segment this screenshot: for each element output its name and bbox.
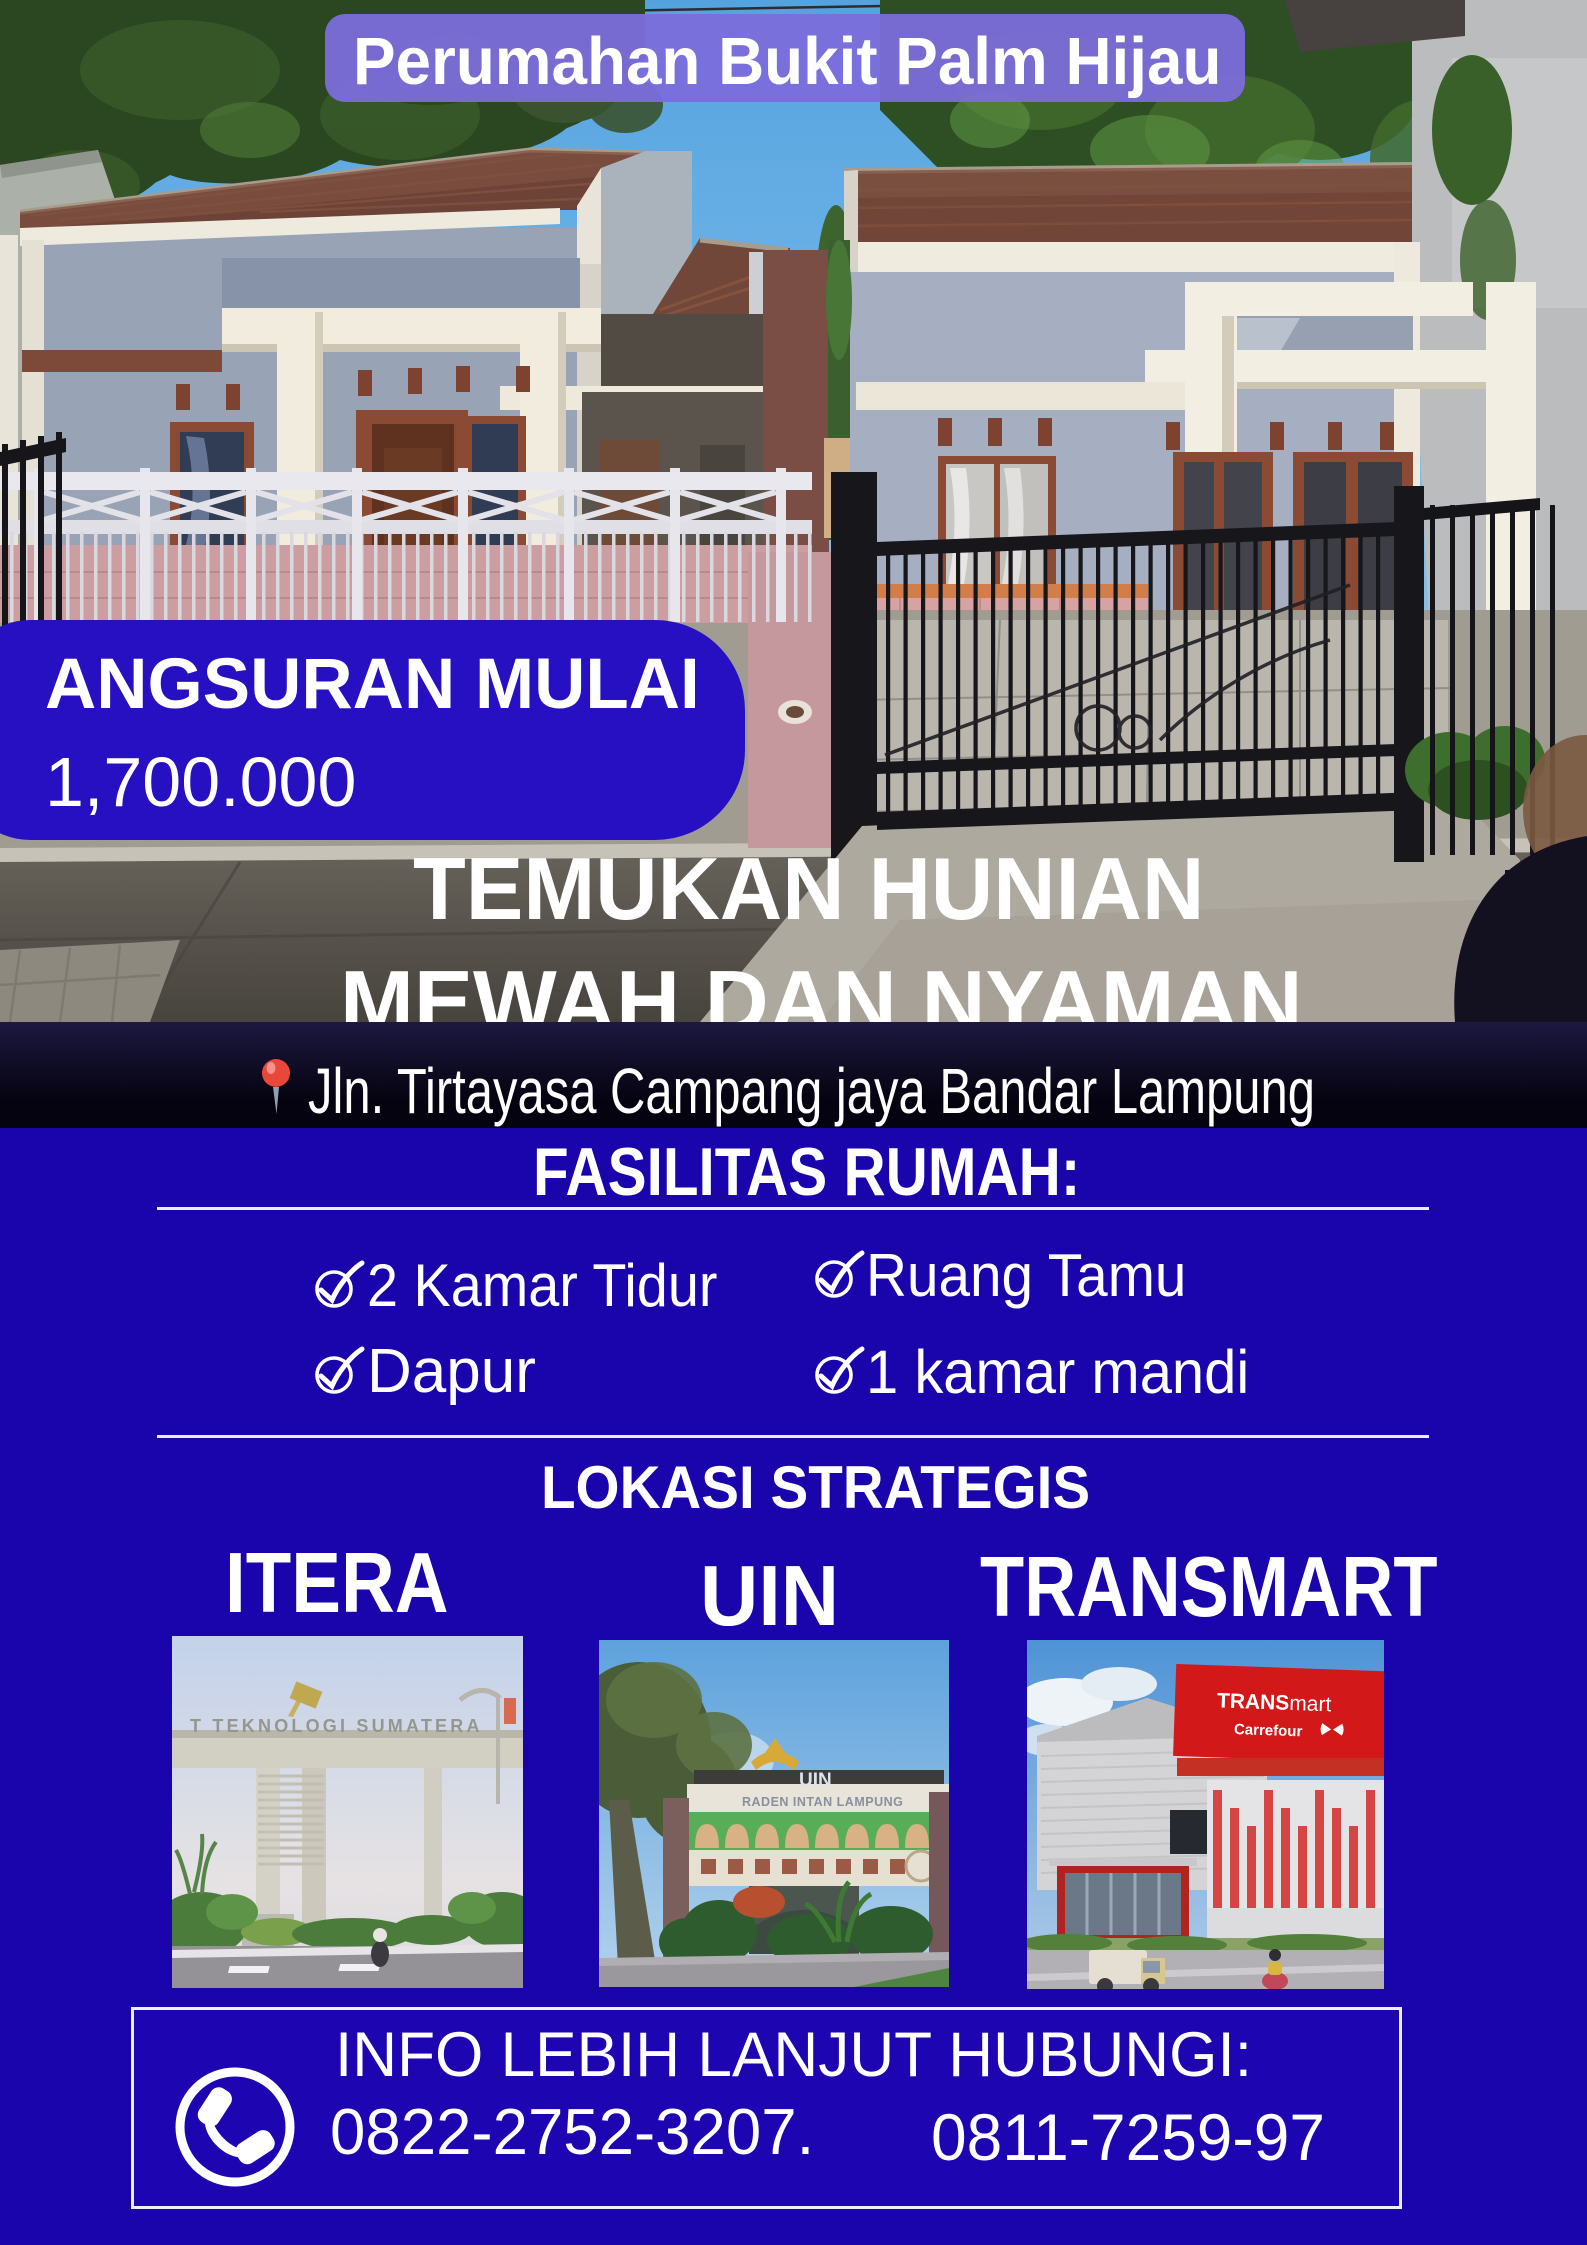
svg-text:TRANSmart: TRANSmart [1217,1689,1332,1716]
svg-text:UIN: UIN [799,1770,832,1791]
svg-text:RADEN INTAN LAMPUNG: RADEN INTAN LAMPUNG [742,1795,903,1809]
svg-text:T TEKNOLOGI SUMATERA: T TEKNOLOGI SUMATERA [190,1716,483,1736]
svg-text:Carrefour: Carrefour [1234,1721,1303,1740]
